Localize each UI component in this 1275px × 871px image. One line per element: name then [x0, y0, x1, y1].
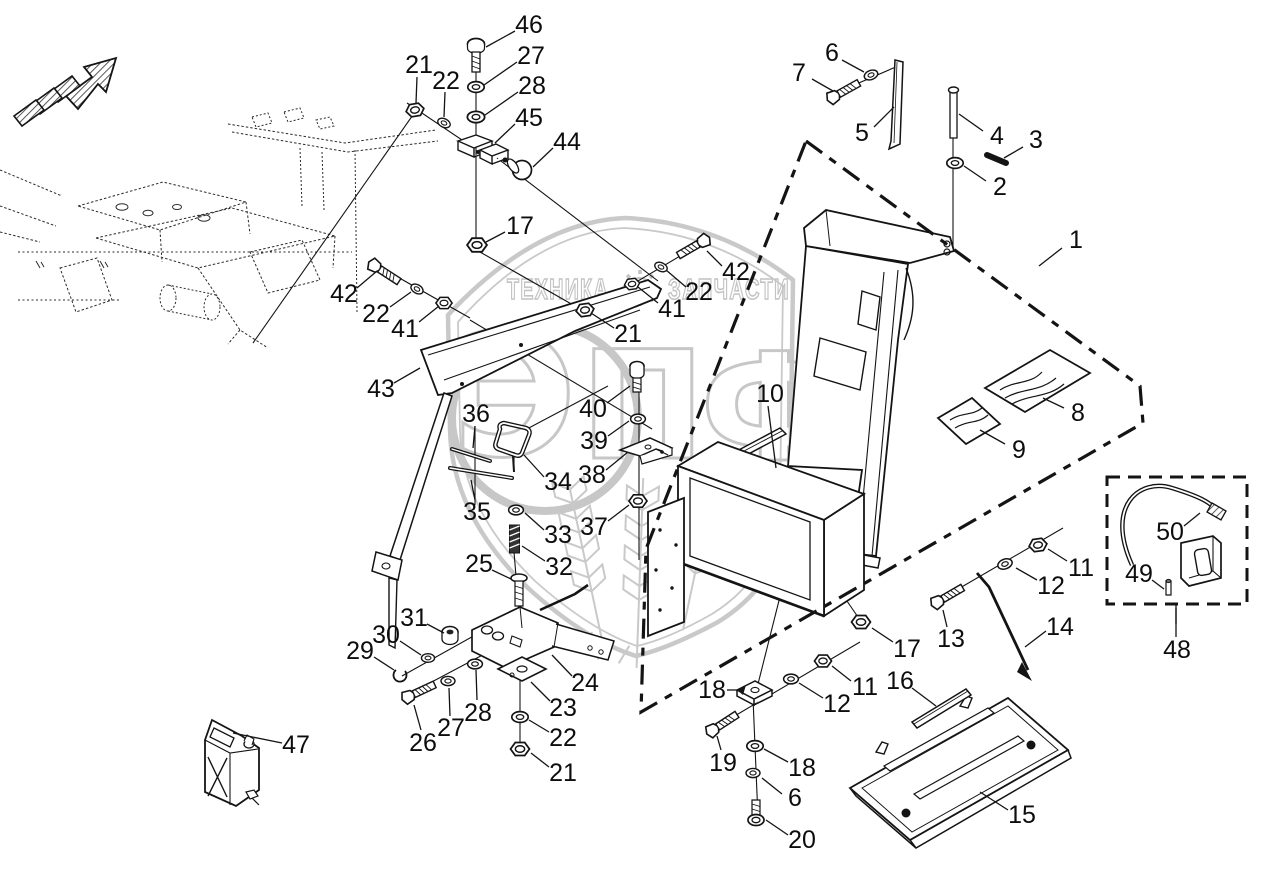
callout-leader-41 [419, 306, 439, 322]
parts-diagram-page: Э П Ф ТЕХНИКА ЗАПЧАСТИ [0, 0, 1275, 871]
part-4-pin [949, 87, 959, 138]
part-28-washer-bottom [468, 659, 483, 669]
callout-number-8: 8 [1071, 399, 1085, 427]
callout-number-28: 28 [464, 699, 492, 727]
part-22-washer-bottom [512, 712, 528, 723]
part-29-clip [393, 670, 406, 682]
callout-number-21: 21 [405, 51, 433, 79]
part-26-bolt [399, 679, 437, 706]
callout-number-11: 11 [1068, 554, 1094, 582]
part-47-canister [205, 720, 259, 806]
part-39-washer [631, 414, 646, 424]
callout-number-48: 48 [1163, 636, 1191, 664]
callout-number-25: 25 [465, 550, 493, 578]
part-22-washer-left [409, 282, 425, 296]
part-33-washer [509, 505, 524, 515]
callout-number-10: 10 [756, 380, 784, 408]
part-5-strip [889, 60, 903, 149]
callout-number-24: 24 [571, 669, 599, 697]
callout-number-22: 22 [362, 300, 390, 328]
part-2-washer [947, 158, 963, 169]
callout-number-5: 5 [855, 119, 869, 147]
part-9-decal [938, 398, 1000, 444]
callout-number-12: 12 [823, 690, 851, 718]
part-18-plate [737, 681, 772, 705]
callout-number-4: 4 [990, 122, 1004, 150]
callout-number-42: 42 [722, 258, 750, 286]
callout-number-13: 13 [937, 625, 965, 653]
part-45-bracket [458, 135, 508, 164]
callout-leader-7 [812, 79, 833, 91]
callout-number-38: 38 [578, 461, 606, 489]
callout-leader-46 [486, 31, 515, 47]
callout-number-15: 15 [1008, 801, 1036, 829]
callout-number-22: 22 [685, 278, 713, 306]
part-22-washer-mid [653, 260, 669, 273]
part-21-nut-top [405, 102, 425, 117]
callout-leader-44 [533, 148, 553, 167]
part-21-nut-bottom [511, 742, 530, 755]
callout-number-45: 45 [515, 104, 543, 132]
callout-leader-43 [394, 368, 420, 383]
callout-number-6: 6 [788, 784, 802, 812]
callout-number-22: 22 [549, 724, 577, 752]
callout-number-44: 44 [553, 128, 581, 156]
exploded-parts-diagram: Э П Ф ТЕХНИКА ЗАПЧАСТИ [0, 0, 1275, 871]
callout-leader-32 [522, 546, 545, 561]
callout-leader-33 [525, 513, 544, 530]
part-19-bolt [703, 709, 740, 740]
callout-number-39: 39 [580, 427, 608, 455]
direction-arrow-icon [14, 58, 116, 126]
callout-leader-28 [476, 670, 477, 700]
callout-leader-12 [1016, 568, 1037, 580]
callout-leader-9 [980, 430, 1005, 444]
part-27-washer-bottom [441, 676, 455, 685]
callout-leader-49 [1152, 580, 1164, 589]
callout-leader-22 [390, 292, 411, 307]
callout-number-18: 18 [788, 754, 816, 782]
parts-layer [205, 39, 1226, 849]
callout-number-27: 27 [517, 42, 545, 70]
callout-number-12: 12 [1037, 572, 1065, 600]
callout-leader-45 [495, 124, 515, 143]
callout-leader-31 [427, 624, 444, 633]
callout-number-3: 3 [1029, 126, 1043, 154]
callout-number-21: 21 [614, 320, 642, 348]
callout-leader-14 [1025, 631, 1046, 647]
part-11-nut-low [814, 655, 831, 667]
callout-leader-3 [1004, 147, 1023, 158]
callout-number-35: 35 [463, 498, 491, 526]
callout-number-16: 16 [886, 667, 914, 695]
callout-leader-42 [357, 271, 377, 288]
callout-leader-25 [492, 570, 511, 579]
part-46-screw [468, 39, 485, 73]
part-6-washer-low [746, 768, 760, 777]
callout-leader-29 [374, 657, 394, 670]
part-32-spring [510, 525, 520, 553]
callout-number-40: 40 [579, 395, 607, 423]
part-31-bushing [442, 627, 458, 645]
callout-leader-22 [444, 92, 445, 117]
part-13-bolt [928, 582, 966, 611]
callout-leader-11 [832, 666, 851, 681]
callout-number-1: 1 [1069, 226, 1083, 254]
callout-leader-4 [959, 114, 983, 131]
part-3-roll-pin [987, 155, 1006, 163]
callout-number-14: 14 [1046, 613, 1074, 641]
callout-leader-42 [707, 251, 722, 266]
callout-leader-27 [484, 62, 517, 85]
part-30-washer [421, 654, 434, 663]
callout-number-17: 17 [893, 635, 921, 663]
callout-leader-27 [449, 688, 450, 716]
callout-leader-5 [874, 107, 894, 127]
callout-number-19: 19 [709, 749, 737, 777]
callout-number-22: 22 [432, 67, 460, 95]
callout-number-36: 36 [462, 400, 490, 428]
callout-number-41: 41 [391, 315, 419, 343]
callout-leader-50 [1184, 513, 1200, 526]
callout-number-41: 41 [658, 295, 686, 323]
part-17-nut-mid [852, 615, 871, 628]
callout-number-2: 2 [993, 173, 1007, 201]
callout-leader-16 [912, 688, 936, 706]
part-14-strut [977, 573, 1032, 681]
callout-number-37: 37 [580, 513, 608, 541]
callout-number-20: 20 [788, 826, 816, 854]
part-15-step-plate [850, 696, 1071, 848]
callout-leader-30 [400, 641, 421, 655]
callout-leader-8 [1043, 398, 1064, 408]
callout-leader-19 [717, 736, 721, 750]
callout-leader-28 [485, 92, 518, 115]
callout-leader-23 [531, 682, 550, 701]
callout-number-28: 28 [518, 72, 546, 100]
callout-number-7: 7 [792, 59, 806, 87]
callout-number-9: 9 [1012, 436, 1026, 464]
part-7-bolt [824, 77, 862, 106]
part-12-washer-up [996, 557, 1013, 571]
callout-number-11: 11 [852, 673, 878, 701]
callout-number-23: 23 [549, 694, 577, 722]
callout-number-17: 17 [506, 212, 534, 240]
part-17-nut-top [467, 238, 487, 252]
callout-leader-17 [486, 232, 505, 242]
part-11-nut-up [1028, 538, 1048, 553]
callout-number-30: 30 [372, 621, 400, 649]
callout-leader-11 [1048, 549, 1067, 561]
callout-number-26: 26 [409, 729, 437, 757]
callout-number-21: 21 [549, 759, 577, 787]
callout-leader-22 [529, 720, 549, 732]
part-44-knob [503, 157, 532, 179]
callout-number-32: 32 [545, 553, 573, 581]
part-28-washer [467, 111, 484, 122]
callout-number-47: 47 [282, 731, 310, 759]
callout-number-42: 42 [330, 280, 358, 308]
callout-number-18: 18 [698, 676, 726, 704]
callout-leader-2 [964, 166, 986, 181]
part-22-washer-top [436, 116, 452, 129]
callout-number-34: 34 [544, 468, 572, 496]
callout-leader-12 [799, 683, 823, 698]
part-25-screw [511, 574, 527, 606]
part-37-nut [629, 495, 647, 507]
callout-leader-6 [762, 778, 782, 794]
part-49-pin [1166, 579, 1171, 595]
callout-leader-6 [842, 60, 864, 72]
callout-leader-20 [766, 820, 788, 835]
callout-number-6: 6 [825, 39, 839, 67]
callout-leader-1 [1039, 248, 1062, 266]
callout-number-43: 43 [367, 375, 395, 403]
callout-leader-26 [414, 705, 421, 730]
callout-leader-17 [872, 628, 893, 642]
callout-leader-18 [764, 749, 788, 762]
part-12-washer-low [784, 674, 799, 684]
callout-number-27: 27 [437, 714, 465, 742]
callout-number-50: 50 [1156, 518, 1184, 546]
part-27-washer [468, 82, 484, 93]
callout-number-46: 46 [515, 11, 543, 39]
callout-leader-21 [416, 77, 417, 103]
callout-leader-24 [552, 655, 572, 676]
part-18-washer [747, 741, 763, 752]
callout-number-33: 33 [544, 521, 572, 549]
callout-number-31: 31 [400, 604, 428, 632]
callout-number-29: 29 [346, 637, 374, 665]
callout-leader-21 [531, 753, 549, 767]
part-20-bolt [748, 800, 764, 826]
part-42-bolt-left [365, 257, 402, 288]
callout-number-49: 49 [1125, 560, 1153, 588]
